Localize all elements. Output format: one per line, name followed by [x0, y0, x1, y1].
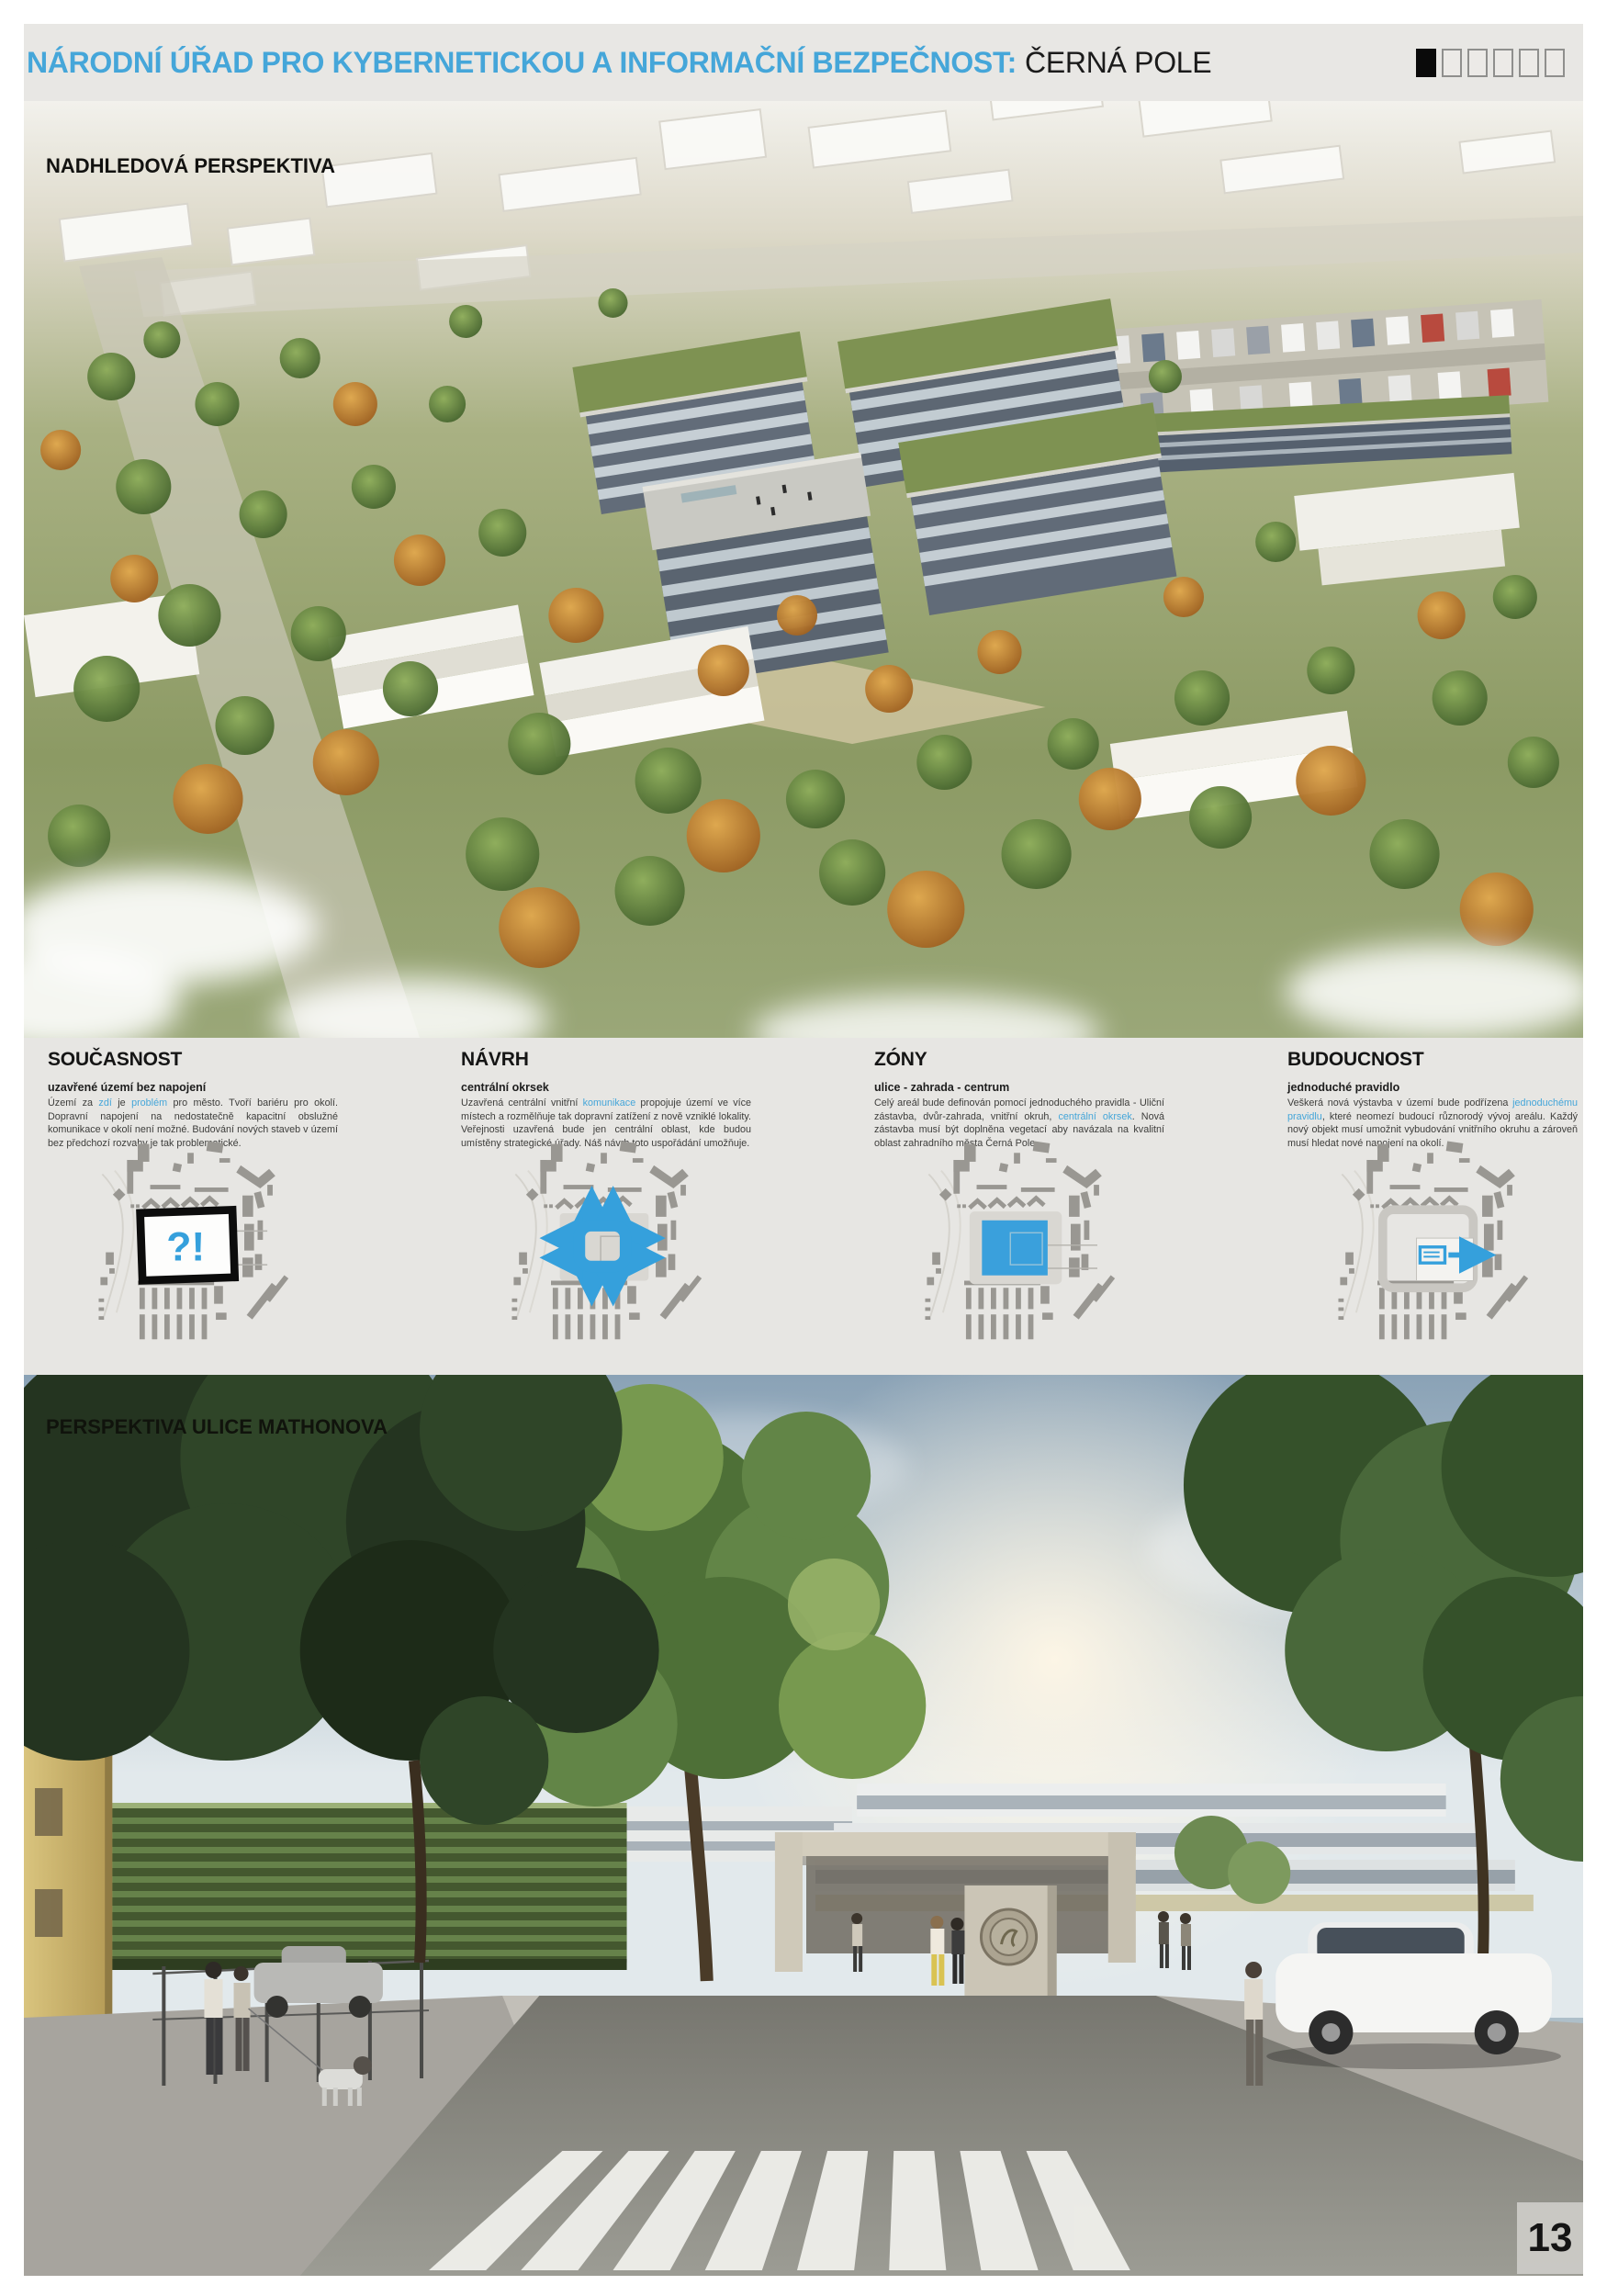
gate-right-pillar: [1108, 1832, 1136, 1963]
section-title: SOUČASNOST: [48, 1049, 338, 1071]
page-header: NÁRODNÍ ÚŘAD PRO KYBERNETICKOU A INFORMA…: [24, 24, 1583, 101]
page-indicator-square: [1442, 49, 1462, 77]
green-louvered-building: [111, 1803, 626, 1970]
page-indicator: [1416, 49, 1565, 77]
section-subtitle: centrální okrsek: [461, 1081, 751, 1094]
street-render: NÚKIB: [24, 1375, 1583, 2276]
aerial-render: [24, 101, 1583, 1038]
blue-zone: [982, 1221, 1048, 1276]
page-title-agency: NÁRODNÍ ÚŘAD PRO KYBERNETICKOU A INFORMA…: [27, 46, 1017, 79]
gate-lintel: [775, 1832, 1136, 1856]
section-title: BUDOUCNOST: [1287, 1049, 1578, 1071]
section-subtitle: jednoduché pravidlo: [1287, 1081, 1578, 1094]
diagram-walled-site-question: ?!: [84, 1133, 351, 1348]
presentation-board: NÁRODNÍ ÚŘAD PRO KYBERNETICKOU A INFORMA…: [24, 24, 1583, 2276]
section-title: NÁVRH: [461, 1049, 751, 1071]
diagram-circuit-loop-arrows: [498, 1133, 764, 1348]
page-indicator-square: [1545, 49, 1565, 77]
aerial-view-label: NADHLEDOVÁ PERSPEKTIVA: [46, 154, 335, 178]
page-indicator-square: [1519, 49, 1539, 77]
page-indicator-square: [1416, 49, 1436, 77]
page-indicator-square: [1493, 49, 1513, 77]
small-tree: [1228, 1841, 1290, 1904]
page-number-badge: 13: [1517, 2202, 1583, 2274]
page-title-site: ČERNÁ POLE: [1025, 46, 1211, 79]
street-view-label: PERSPEKTIVA ULICE MATHONOVA: [46, 1415, 388, 1439]
section-title: ZÓNY: [874, 1049, 1164, 1071]
question-exclamation-mark: ?!: [166, 1224, 205, 1269]
gate-left-pillar: [775, 1832, 803, 1972]
section-subtitle: ulice - zahrada - centrum: [874, 1081, 1164, 1094]
page-indicator-square: [1467, 49, 1488, 77]
street-view-image: PERSPEKTIVA ULICE MATHONOVA: [24, 1375, 1583, 2276]
diagram-blue-zone: [911, 1133, 1177, 1348]
section-subtitle: uzavřené území bez napojení: [48, 1081, 338, 1094]
diagram-growth-rule-arrow: [1324, 1133, 1590, 1348]
info-band: SOUČASNOST uzavřené území bez napojení Ú…: [24, 1038, 1583, 1375]
pedestrian-right: [1244, 1962, 1263, 2086]
page-title: NÁRODNÍ ÚŘAD PRO KYBERNETICKOU A INFORMA…: [27, 46, 1211, 80]
aerial-view-image: NADHLEDOVÁ PERSPEKTIVA: [24, 101, 1583, 1038]
